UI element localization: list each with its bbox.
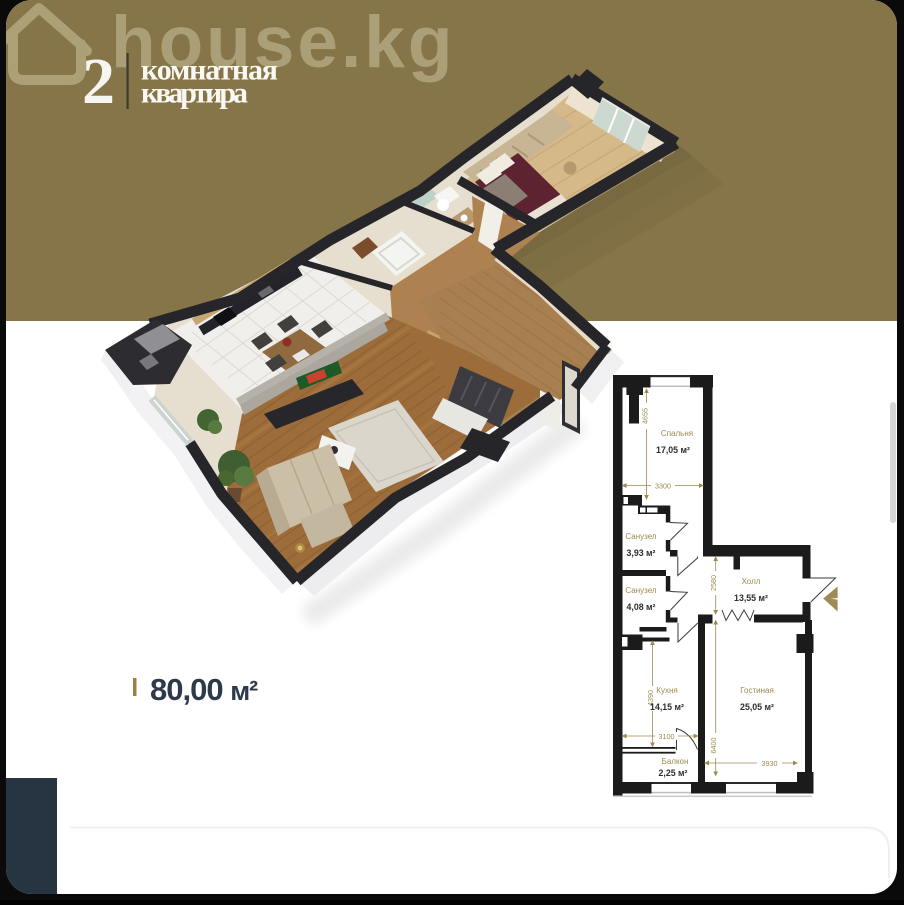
svg-text:Гостиная: Гостиная bbox=[740, 686, 774, 695]
svg-text:13,55 м²: 13,55 м² bbox=[734, 593, 768, 603]
svg-text:Балкон: Балкон bbox=[662, 757, 689, 766]
svg-text:Санузел: Санузел bbox=[625, 532, 656, 541]
svg-text:3930: 3930 bbox=[762, 759, 778, 768]
svg-text:4655: 4655 bbox=[641, 408, 650, 424]
svg-text:14,15 м²: 14,15 м² bbox=[650, 702, 684, 712]
svg-text:Санузел: Санузел bbox=[625, 586, 656, 595]
svg-text:Холл: Холл bbox=[742, 577, 761, 586]
svg-text:квартира: квартира bbox=[141, 77, 248, 110]
svg-text:3100: 3100 bbox=[659, 732, 675, 741]
svg-text:25,05 м²: 25,05 м² bbox=[740, 702, 774, 712]
svg-text:6400: 6400 bbox=[709, 738, 718, 754]
svg-text:2580: 2580 bbox=[709, 575, 718, 591]
svg-text:17,05 м²: 17,05 м² bbox=[656, 445, 690, 455]
svg-text:Спальня: Спальня bbox=[661, 429, 693, 438]
svg-text:80,00 м²: 80,00 м² bbox=[150, 672, 258, 707]
svg-text:Кухня: Кухня bbox=[656, 686, 677, 695]
svg-text:2,25 м²: 2,25 м² bbox=[658, 768, 687, 778]
svg-text:3300: 3300 bbox=[655, 481, 671, 490]
svg-text:2: 2 bbox=[82, 45, 115, 118]
svg-text:4,08 м²: 4,08 м² bbox=[626, 602, 655, 612]
svg-text:3,93 м²: 3,93 м² bbox=[626, 548, 655, 558]
